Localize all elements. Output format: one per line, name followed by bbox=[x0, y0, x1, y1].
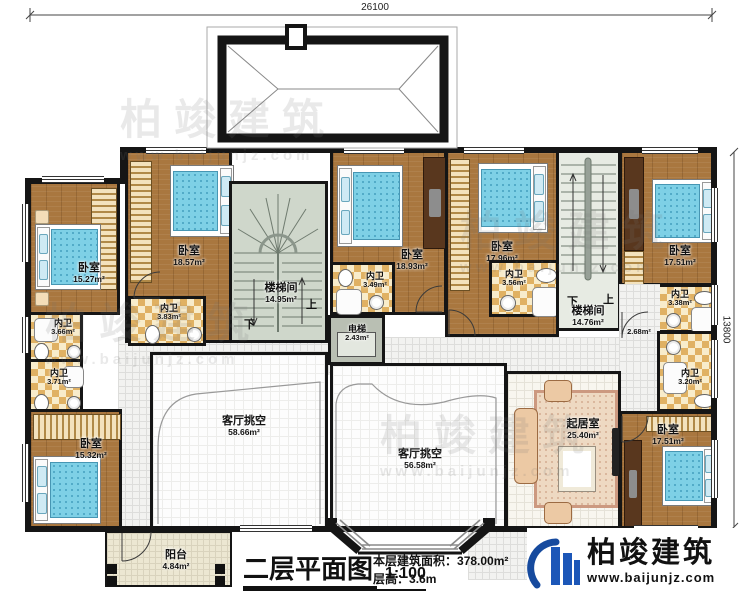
room-label: 电梯2.43m² bbox=[337, 324, 377, 343]
column-post bbox=[107, 576, 117, 586]
sofa bbox=[514, 408, 538, 484]
company-name: 柏竣建筑 bbox=[587, 539, 715, 568]
room-elevator: 电梯2.43m² bbox=[328, 315, 385, 365]
bed bbox=[33, 456, 101, 524]
room-label: 卧室17.51m² bbox=[638, 424, 698, 446]
window bbox=[146, 147, 206, 154]
sink bbox=[369, 295, 384, 310]
room-label: 内卫3.38m² bbox=[662, 289, 698, 308]
room-void-west: 客厅挑空58.66m² bbox=[150, 352, 328, 530]
window bbox=[711, 440, 718, 498]
sink bbox=[500, 295, 516, 311]
dimension-top: 26100 bbox=[330, 2, 420, 13]
room-bedroom-sw: 卧室15.32m² bbox=[28, 409, 122, 530]
room-balcony: 阳台4.84m² bbox=[105, 531, 232, 587]
room-label: 卧室15.32m² bbox=[61, 438, 121, 460]
window bbox=[711, 285, 718, 325]
room-bath-w1: 内卫3.66m² bbox=[28, 312, 83, 362]
room-hall-e: 2.68m² bbox=[619, 284, 660, 368]
desk-tv-unit bbox=[624, 157, 644, 251]
room-label: 2.68m² bbox=[619, 328, 659, 337]
bed bbox=[170, 165, 234, 237]
company-website: www.baijunjz.com bbox=[587, 570, 715, 585]
shower bbox=[532, 287, 559, 317]
window bbox=[22, 204, 29, 262]
room-bath-n3: 内卫3.56m² bbox=[489, 260, 559, 317]
armchair bbox=[544, 380, 572, 402]
room-bedroom-se: 卧室17.51m² bbox=[619, 411, 715, 530]
room-label: 客厅挑空58.66m² bbox=[209, 415, 279, 437]
window bbox=[464, 147, 524, 154]
window bbox=[642, 147, 698, 154]
room-label: 卧室18.57m² bbox=[156, 245, 222, 267]
room-label: 阳台4.84m² bbox=[151, 549, 201, 571]
plan-area-note: 本层建筑面积：378.00m² bbox=[373, 552, 508, 570]
room-bath-n2: 内卫3.49m² bbox=[330, 262, 395, 315]
plan-floor-height-note: 层高：3.6m bbox=[373, 570, 508, 588]
desk-tv-unit bbox=[624, 440, 642, 528]
window bbox=[344, 147, 404, 154]
shower bbox=[336, 289, 362, 315]
room-bath-w2: 内卫3.71m² bbox=[28, 359, 83, 412]
armchair bbox=[544, 502, 572, 524]
room-bath-e2: 内卫3.20m² bbox=[657, 331, 715, 412]
sink bbox=[67, 345, 81, 359]
room-void-east: 客厅挑空56.58m² bbox=[330, 363, 507, 530]
window bbox=[22, 317, 29, 353]
wall-segment bbox=[120, 147, 126, 184]
plan-title: 二层平面图 bbox=[243, 554, 377, 589]
bed bbox=[662, 446, 716, 506]
sink bbox=[187, 327, 202, 342]
room-label: 起居室25.40m² bbox=[546, 418, 620, 440]
room-label: 内卫3.83m² bbox=[149, 303, 189, 322]
sink bbox=[666, 340, 681, 355]
nightstand bbox=[35, 210, 49, 224]
bed bbox=[478, 163, 548, 233]
room-label: 内卫3.20m² bbox=[672, 368, 708, 387]
room-bath-e1: 内卫3.38m² bbox=[657, 284, 715, 333]
dimension-right: 13800 bbox=[720, 316, 731, 344]
room-label: 内卫3.66m² bbox=[45, 318, 81, 337]
desk-tv-unit bbox=[423, 157, 447, 249]
toilet bbox=[338, 269, 353, 287]
room-living: 起居室25.40m² bbox=[505, 371, 621, 530]
plan-info: 本层建筑面积：378.00m² 层高：3.6m bbox=[373, 552, 508, 588]
room-stair-west: 楼梯间14.95m² 上 下 bbox=[229, 181, 328, 343]
room-label: 内卫3.49m² bbox=[355, 271, 395, 290]
company-logo: 柏竣建筑 www.baijunjz.com bbox=[527, 528, 739, 596]
room-label: 楼梯间14.76m² bbox=[559, 305, 617, 327]
room-label: 内卫3.71m² bbox=[41, 368, 77, 387]
toilet bbox=[145, 325, 160, 344]
window bbox=[711, 188, 718, 242]
sink bbox=[666, 313, 681, 328]
room-bedroom-ne: 卧室17.51m² bbox=[619, 150, 715, 286]
wardrobe bbox=[130, 161, 152, 283]
nightstand bbox=[35, 292, 49, 306]
room-label: 楼梯间14.95m² bbox=[248, 282, 314, 304]
stair-up-label: 上 bbox=[306, 296, 317, 312]
sink bbox=[67, 396, 81, 410]
floor-plan-canvas: 卧室15.27m² 卧室18.57m² 内卫3.83m² 内卫3.66m² 内卫… bbox=[0, 0, 750, 600]
bed bbox=[652, 179, 716, 243]
window bbox=[240, 525, 312, 532]
wardrobe bbox=[450, 159, 470, 291]
room-label: 客厅挑空56.58m² bbox=[385, 448, 455, 470]
column-post bbox=[107, 564, 117, 574]
room-label: 卧室15.27m² bbox=[59, 262, 119, 284]
stair-down-label: 下 bbox=[244, 316, 255, 332]
toilet bbox=[536, 268, 557, 283]
wardrobe bbox=[33, 414, 121, 440]
company-logo-icon bbox=[527, 533, 581, 591]
wardrobe bbox=[624, 251, 644, 285]
corridor-floor bbox=[619, 366, 661, 414]
column-post bbox=[215, 576, 225, 586]
window bbox=[711, 340, 718, 398]
room-label: 卧室17.51m² bbox=[650, 245, 710, 267]
wall-segment bbox=[120, 147, 717, 153]
bed bbox=[337, 165, 403, 247]
room-bedroom-nw: 卧室15.27m² bbox=[28, 181, 120, 315]
room-label: 内卫3.56m² bbox=[494, 269, 534, 288]
column-post bbox=[215, 564, 225, 574]
stair-treads-icon bbox=[559, 153, 618, 288]
room-stair-east: 下 上 楼梯间14.76m² bbox=[556, 150, 621, 331]
window bbox=[22, 444, 29, 502]
room-bath-n1: 内卫3.83m² bbox=[128, 296, 206, 346]
window bbox=[42, 176, 104, 183]
coffee-table bbox=[558, 446, 596, 492]
